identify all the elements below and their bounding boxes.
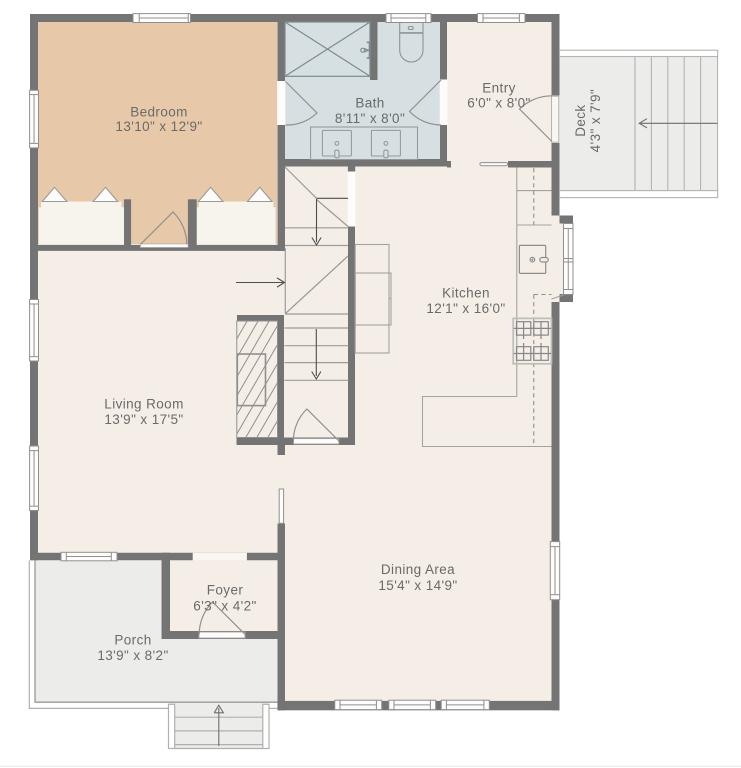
svg-text:Dining Area: Dining Area [381, 562, 455, 577]
svg-text:15'4" x 14'9": 15'4" x 14'9" [378, 578, 457, 593]
svg-text:6'3" x 4'2": 6'3" x 4'2" [193, 599, 256, 614]
svg-text:13'9" x 8'2": 13'9" x 8'2" [97, 648, 168, 663]
svg-text:Deck: Deck [573, 104, 588, 136]
svg-text:12'1" x 16'0": 12'1" x 16'0" [426, 301, 505, 316]
svg-text:Entry: Entry [482, 81, 516, 96]
svg-text:Porch: Porch [114, 633, 151, 648]
svg-text:Bath: Bath [355, 96, 384, 111]
svg-text:Bedroom: Bedroom [130, 105, 188, 120]
svg-text:4'3" x 7'9": 4'3" x 7'9" [588, 89, 603, 152]
svg-text:13'10" x 12'9": 13'10" x 12'9" [115, 119, 202, 134]
svg-text:13'9" x 17'5": 13'9" x 17'5" [104, 412, 183, 427]
svg-text:8'11" x 8'0": 8'11" x 8'0" [335, 111, 405, 126]
svg-text:Foyer: Foyer [207, 583, 244, 598]
svg-text:Kitchen: Kitchen [442, 286, 490, 301]
svg-text:Living Room: Living Room [104, 397, 183, 412]
svg-text:6'0" x 8'0": 6'0" x 8'0" [467, 96, 530, 111]
